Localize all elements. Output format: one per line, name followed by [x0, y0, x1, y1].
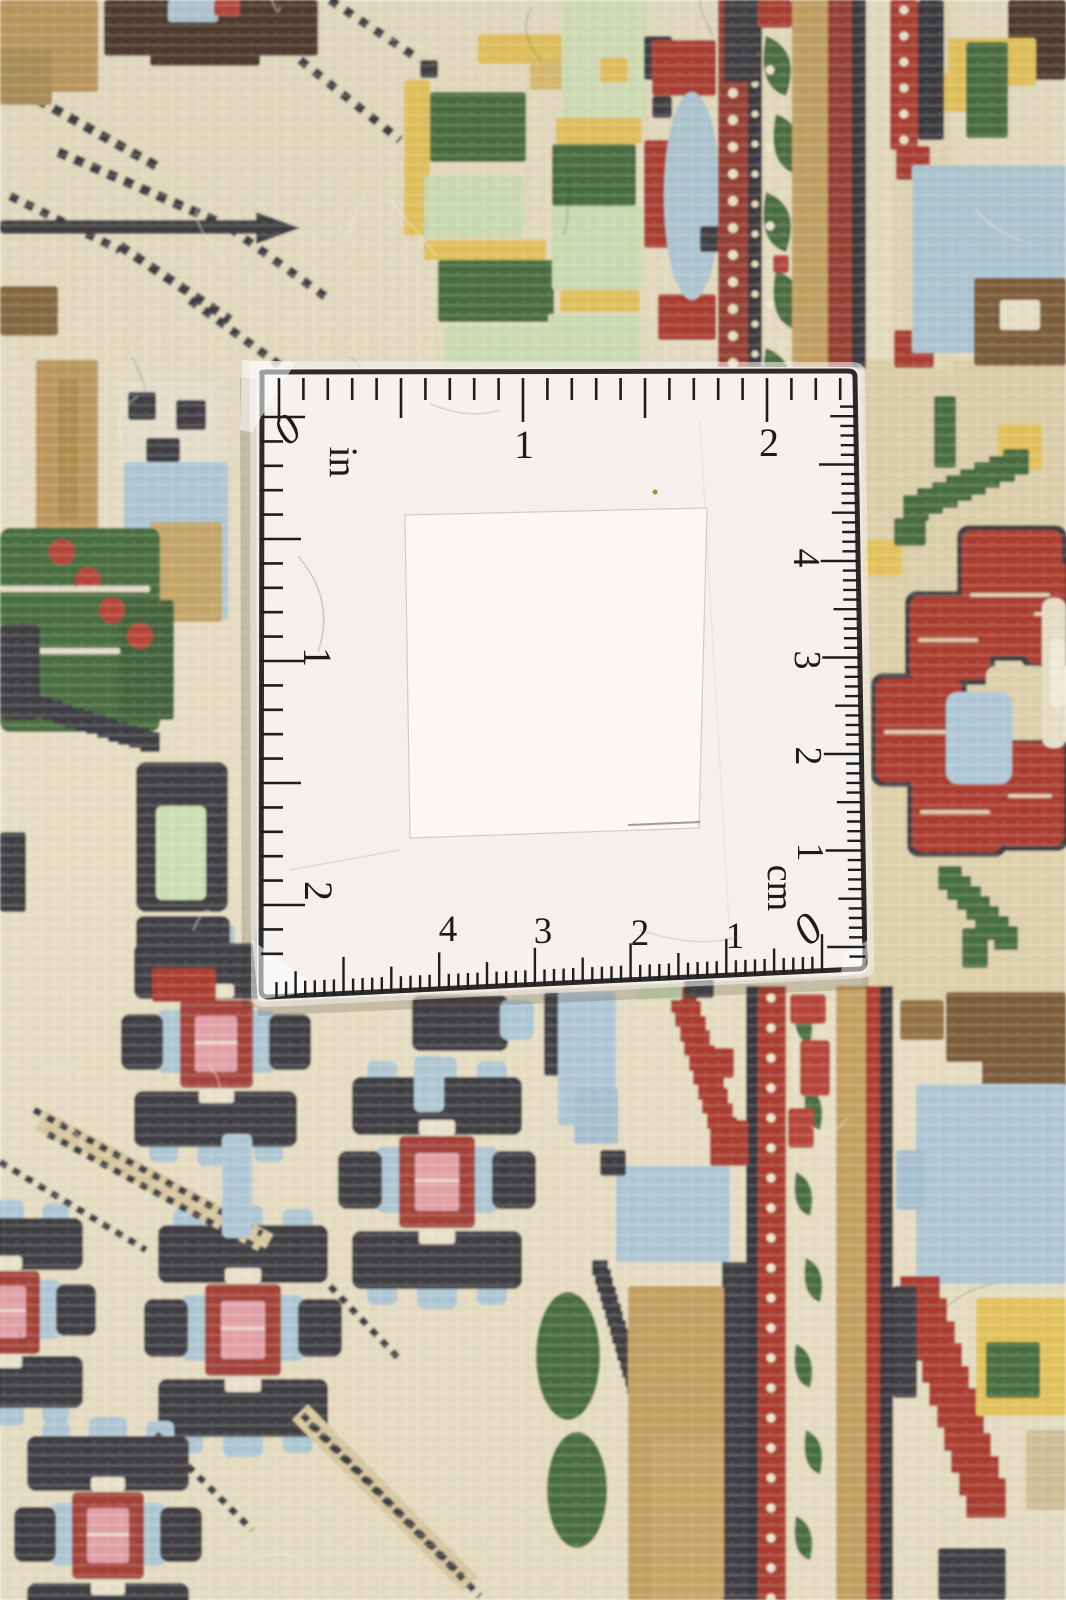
svg-text:cm: cm	[759, 865, 801, 911]
svg-text:4: 4	[785, 549, 827, 568]
svg-text:1: 1	[726, 916, 745, 957]
svg-text:3: 3	[534, 911, 553, 952]
svg-text:3: 3	[786, 651, 828, 670]
svg-text:in: in	[321, 446, 366, 477]
svg-text:2: 2	[631, 913, 650, 954]
svg-text:2: 2	[759, 420, 779, 465]
svg-text:2: 2	[787, 747, 829, 766]
svg-text:4: 4	[439, 909, 458, 950]
svg-text:1: 1	[514, 422, 534, 467]
svg-text:1: 1	[295, 647, 340, 667]
svg-text:1: 1	[789, 843, 831, 862]
svg-text:2: 2	[296, 881, 341, 901]
